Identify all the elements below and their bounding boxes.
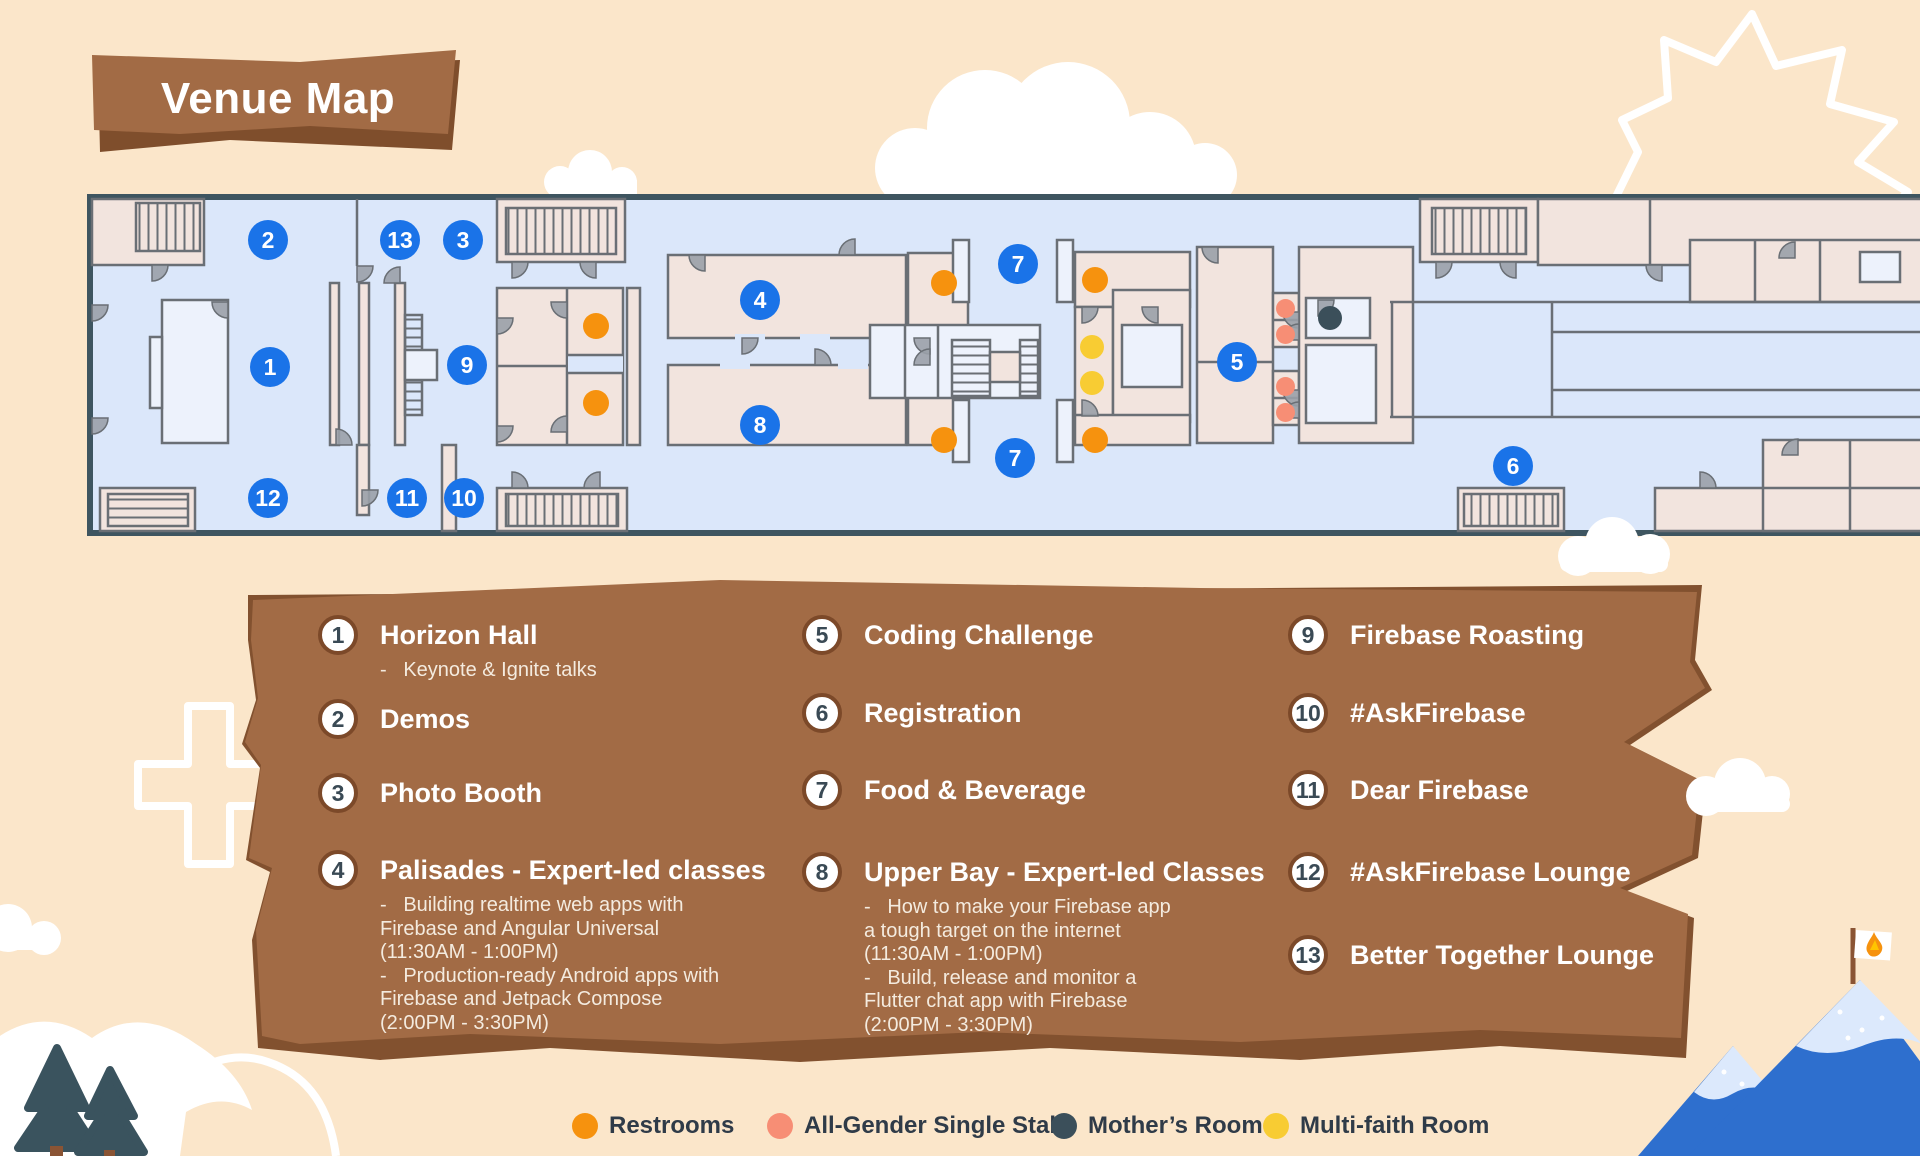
multi_faith-dot-icon	[1263, 1113, 1289, 1139]
key-label: Mother’s Room	[1088, 1112, 1263, 1140]
key-label: All-Gender Single Stall	[804, 1112, 1063, 1140]
all_gender-dot-icon	[767, 1113, 793, 1139]
key-item-multi_faith: Multi-faith Room	[1263, 1112, 1489, 1140]
restrooms-dot-icon	[572, 1113, 598, 1139]
venue-map-poster: 213319121110487756 1Horizon Hall- Keynot…	[0, 0, 1920, 1156]
key-label: Restrooms	[609, 1112, 734, 1140]
key-label: Multi-faith Room	[1300, 1112, 1489, 1140]
amenity-key: RestroomsAll-Gender Single StallMother’s…	[0, 0, 1920, 1156]
key-item-all_gender: All-Gender Single Stall	[767, 1112, 1063, 1140]
key-item-restrooms: Restrooms	[572, 1112, 734, 1140]
key-item-mothers: Mother’s Room	[1051, 1112, 1263, 1140]
mothers-dot-icon	[1051, 1113, 1077, 1139]
